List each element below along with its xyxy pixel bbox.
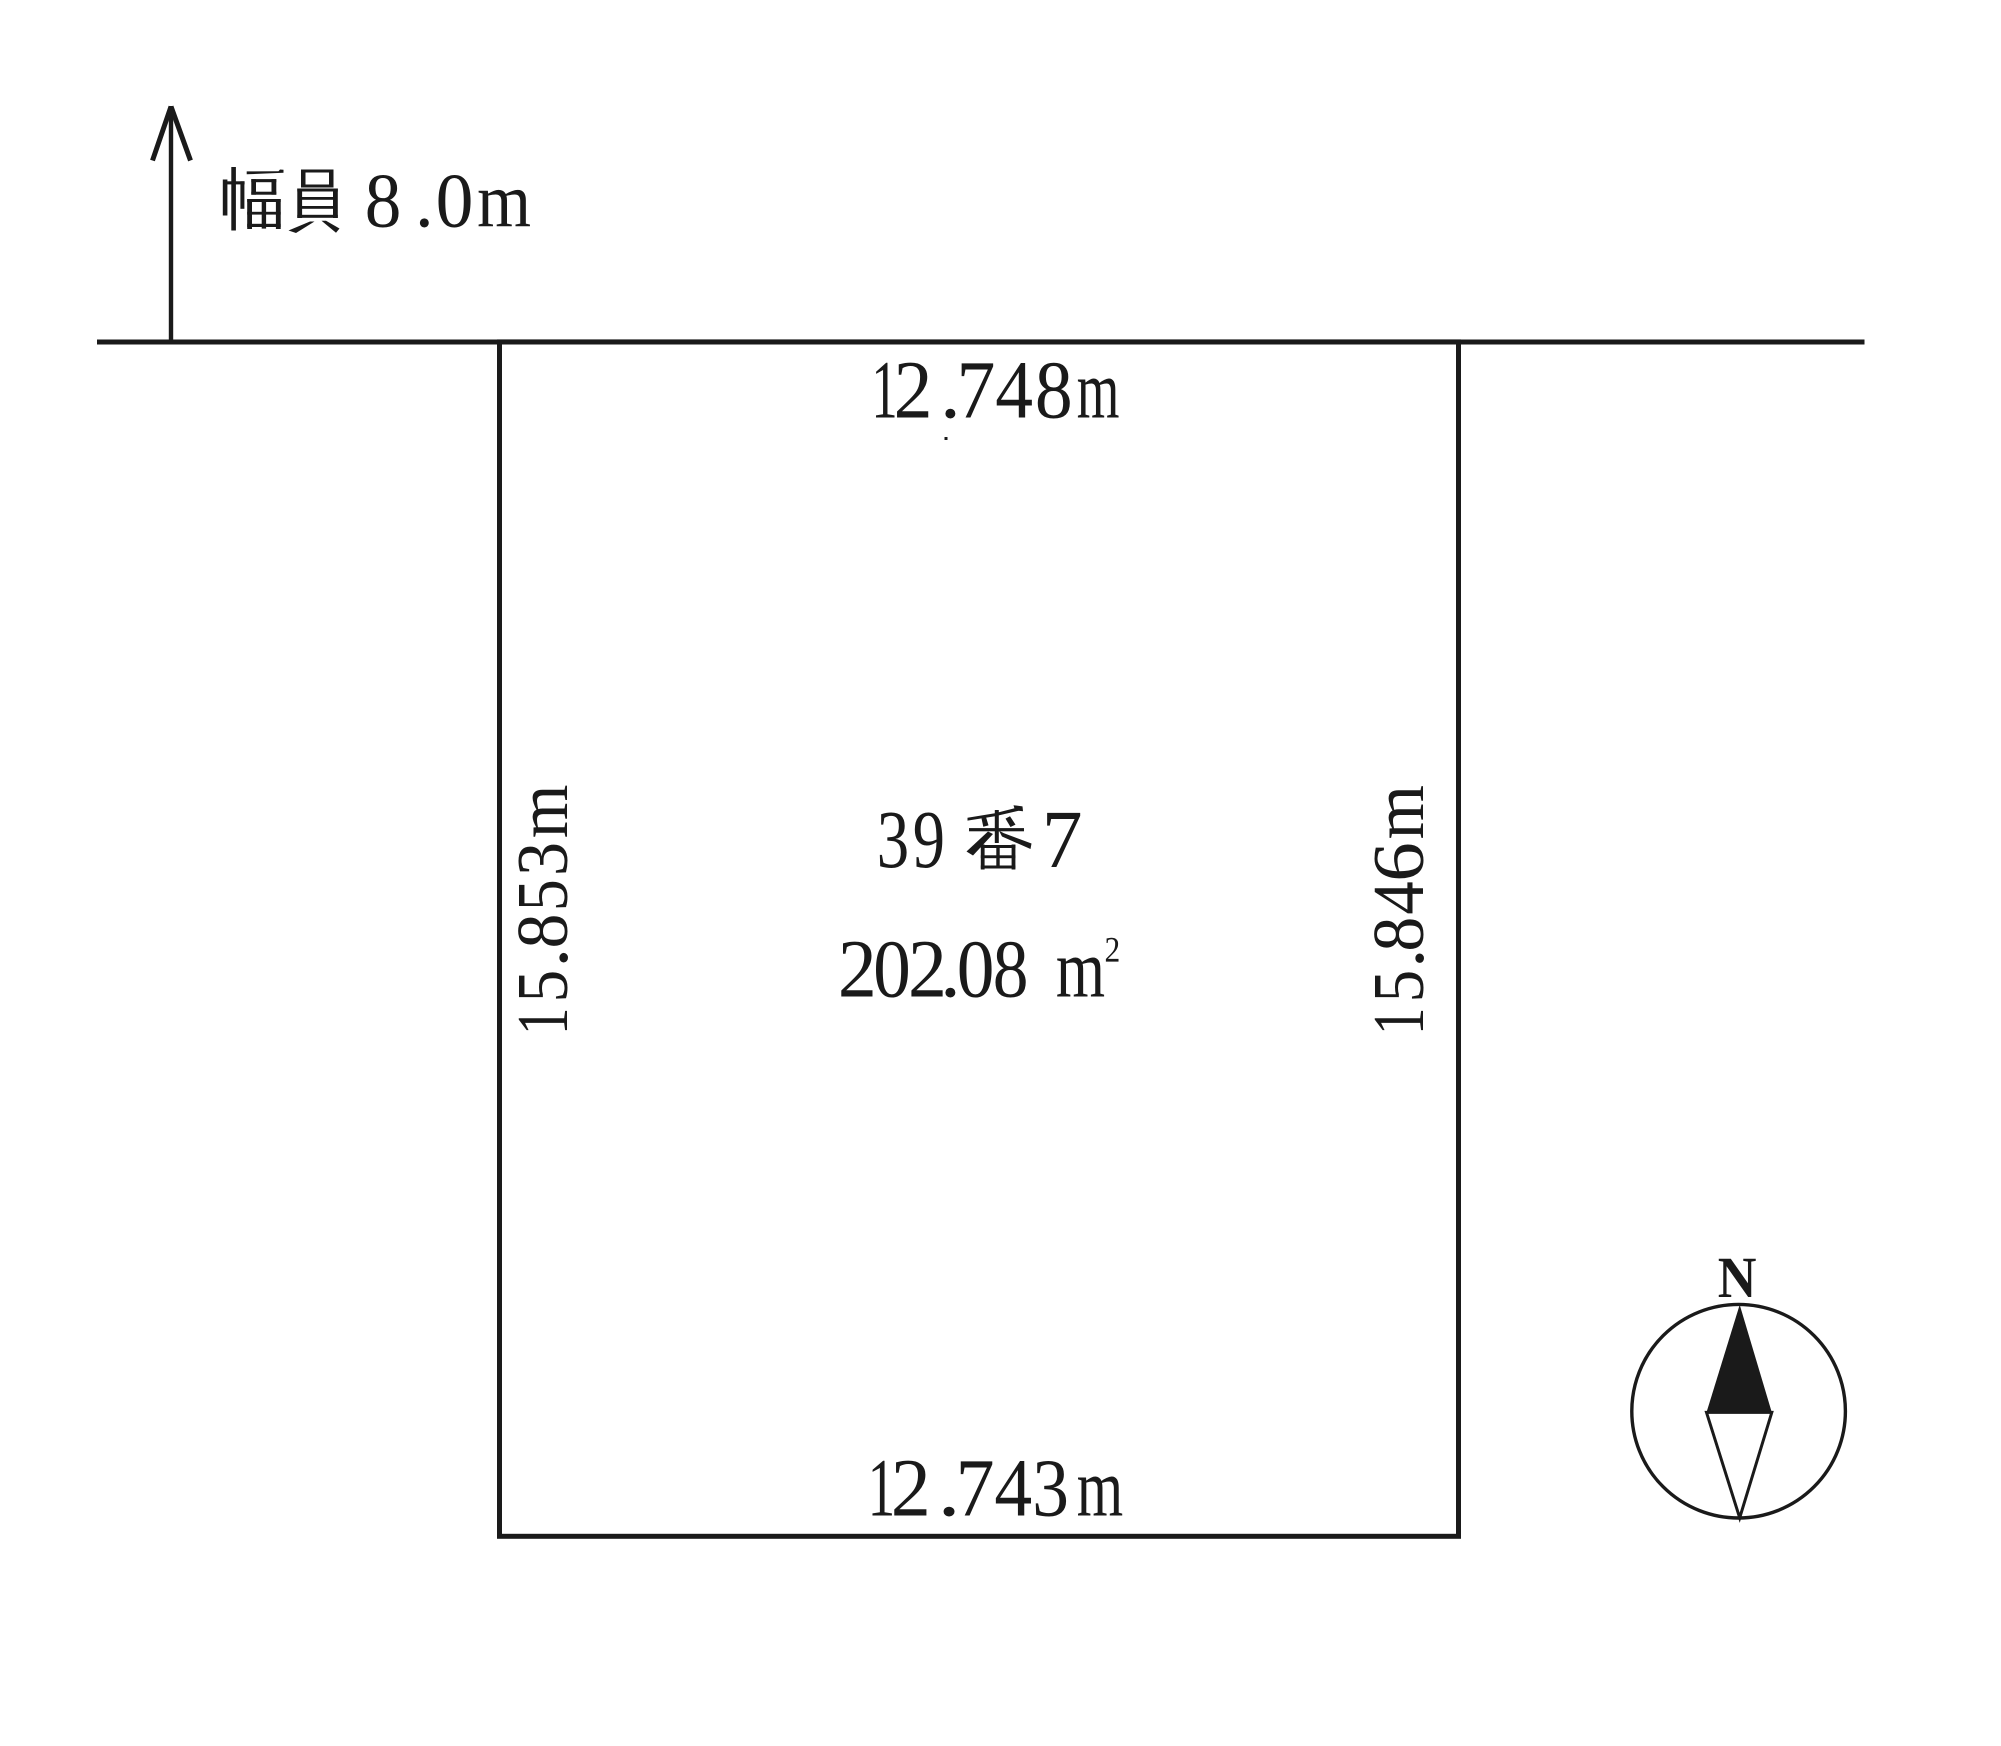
svg-text:8: 8 [365,158,402,244]
svg-text:N: N [1718,1245,1757,1310]
svg-text:m: m [1077,344,1120,436]
svg-text:8: 8 [1358,917,1439,952]
svg-text:0: 0 [957,923,995,1015]
svg-text:8: 8 [1035,344,1073,436]
svg-text:4: 4 [995,344,1033,436]
svg-text:m: m [1077,1441,1123,1533]
svg-text:8: 8 [993,923,1029,1015]
svg-text:3: 3 [1032,1441,1069,1533]
svg-text:m: m [477,158,531,244]
svg-text:m: m [1358,785,1439,839]
svg-text:2: 2 [838,923,877,1015]
svg-text:1: 1 [502,1008,583,1035]
svg-text:.: . [415,158,434,244]
svg-text:7: 7 [957,344,996,436]
svg-text:9: 9 [913,793,945,885]
svg-text:7: 7 [1042,793,1083,885]
svg-text:2: 2 [894,344,933,436]
svg-text:5: 5 [1358,970,1439,1003]
svg-text:.: . [502,948,583,968]
svg-text:4: 4 [994,1441,1032,1533]
svg-text:7: 7 [956,1441,995,1533]
svg-text:0: 0 [436,158,474,244]
svg-text:5: 5 [502,970,583,1003]
svg-text:2: 2 [891,1441,931,1533]
svg-text:3: 3 [502,842,583,876]
svg-text:0: 0 [873,923,911,1015]
svg-text:4: 4 [1358,881,1439,914]
svg-text:8: 8 [502,914,583,949]
svg-text:5: 5 [502,879,583,911]
svg-text:1: 1 [1358,1008,1439,1035]
svg-text:3: 3 [877,793,909,885]
svg-text:6: 6 [1358,842,1439,882]
svg-text:m: m [502,785,583,839]
svg-text:m: m [1056,923,1105,1015]
